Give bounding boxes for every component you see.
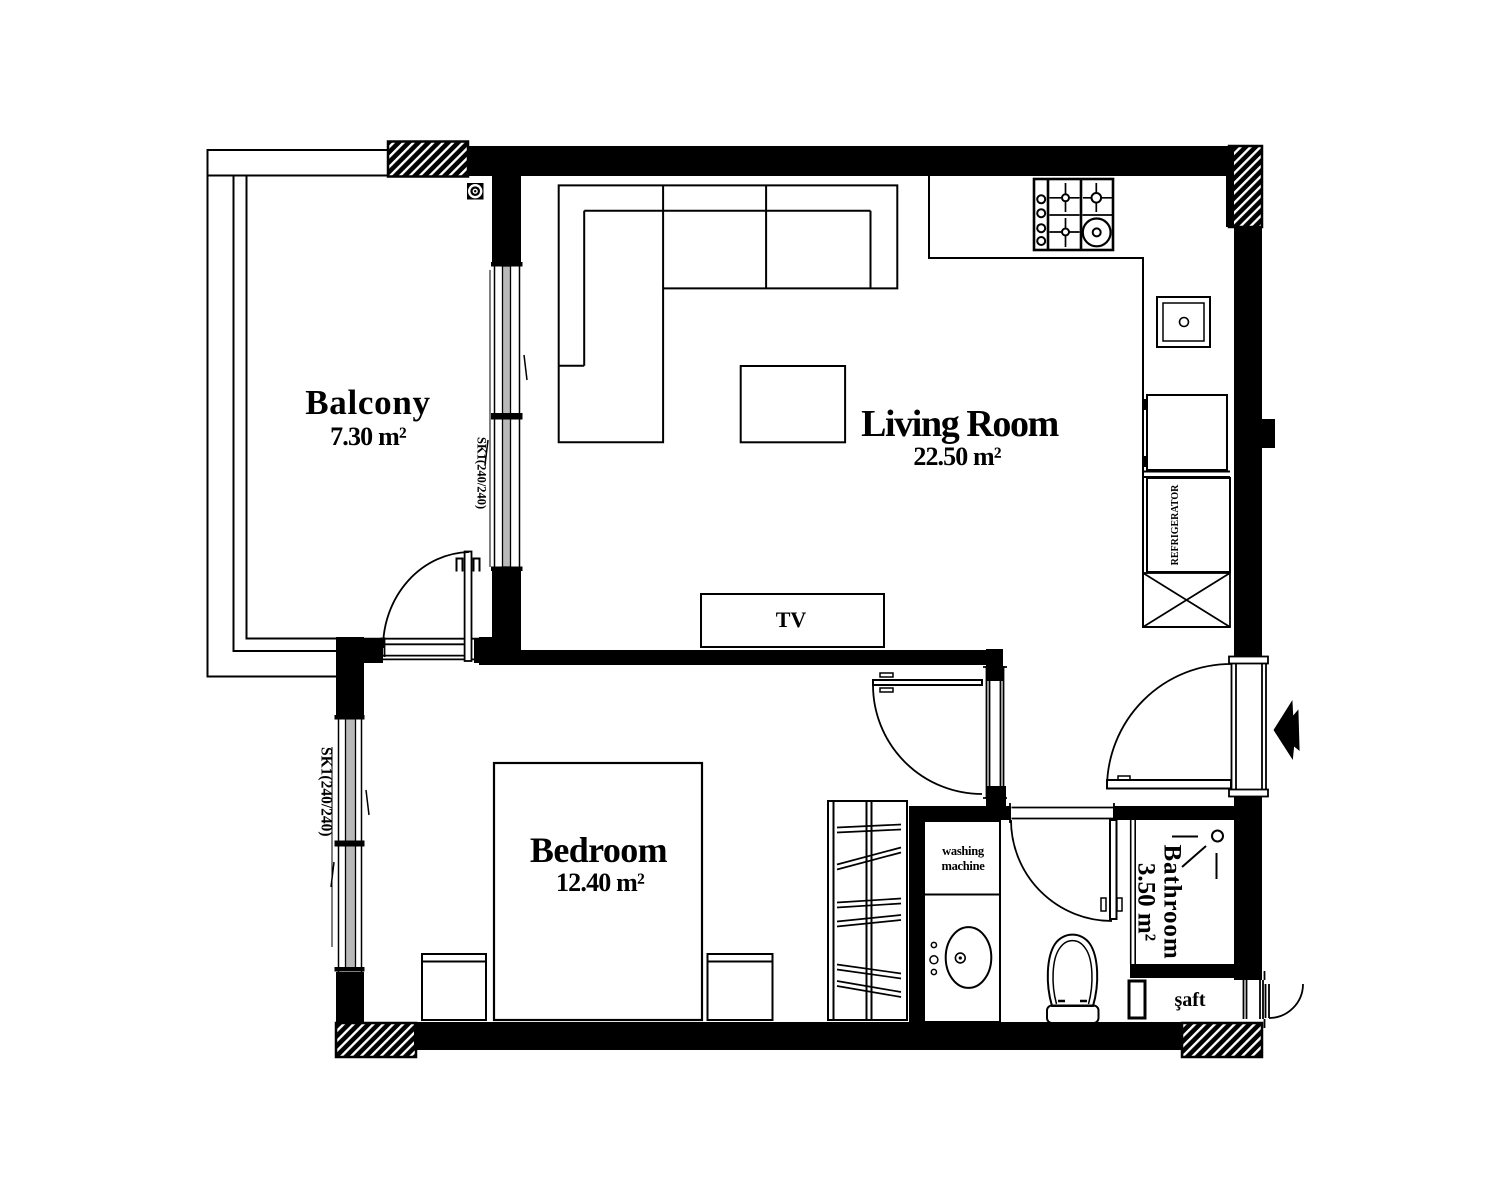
svg-text:REFRIGERATOR: REFRIGERATOR — [1170, 484, 1181, 566]
svg-text:Bathroom: Bathroom — [1159, 844, 1186, 959]
svg-text:Bedroom: Bedroom — [530, 830, 668, 870]
svg-text:TV: TV — [776, 607, 807, 632]
svg-text:3.50 m²: 3.50 m² — [1133, 863, 1160, 941]
svg-text:washing: washing — [942, 844, 985, 858]
svg-text:Balcony: Balcony — [305, 383, 430, 422]
svg-text:Living Room: Living Room — [861, 403, 1059, 445]
svg-text:22.50 m²: 22.50 m² — [913, 442, 1001, 471]
svg-text:SK1(240/240): SK1(240/240) — [318, 747, 335, 837]
svg-text:şaft: şaft — [1174, 989, 1205, 1011]
svg-text:12.40 m²: 12.40 m² — [556, 868, 645, 897]
svg-text:machine: machine — [941, 859, 985, 873]
svg-text:SK1(240/240): SK1(240/240) — [475, 437, 489, 509]
svg-text:7.30 m²: 7.30 m² — [330, 422, 407, 451]
